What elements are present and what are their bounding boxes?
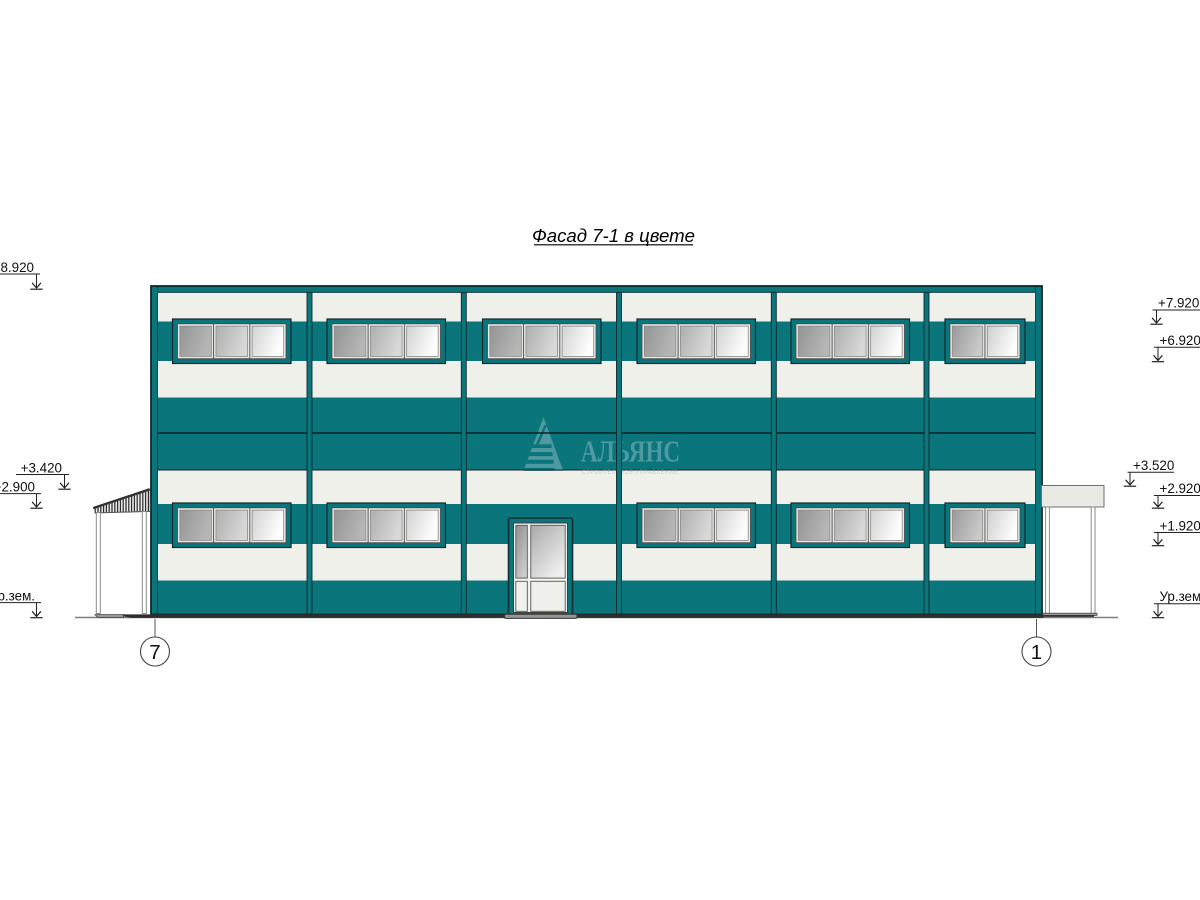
svg-text:Фасад 7-1 в цвете: Фасад 7-1 в цвете xyxy=(532,225,695,246)
svg-text:Ур.зем.: Ур.зем. xyxy=(1160,589,1200,604)
svg-text:Ур.зем.: Ур.зем. xyxy=(0,589,35,604)
svg-text:+3.520: +3.520 xyxy=(1133,458,1174,473)
svg-text:+6.920: +6.920 xyxy=(1160,333,1200,348)
svg-text:+2.900: +2.900 xyxy=(0,480,35,495)
svg-text:1: 1 xyxy=(1031,641,1042,664)
svg-text:+3.420: +3.420 xyxy=(21,461,62,476)
svg-text:+8.920: +8.920 xyxy=(0,260,34,275)
svg-text:+7.920: +7.920 xyxy=(1158,296,1199,311)
svg-text:+2.920: +2.920 xyxy=(1160,481,1200,496)
svg-text:АЛЬЯНС: АЛЬЯНС xyxy=(581,435,680,469)
svg-text:+1.920: +1.920 xyxy=(1160,519,1200,534)
svg-text:СТРОИТЕЛЬНОЕ УПРАВЛЕНИЕ: СТРОИТЕЛЬНОЕ УПРАВЛЕНИЕ xyxy=(582,469,678,476)
svg-text:7: 7 xyxy=(149,641,160,664)
